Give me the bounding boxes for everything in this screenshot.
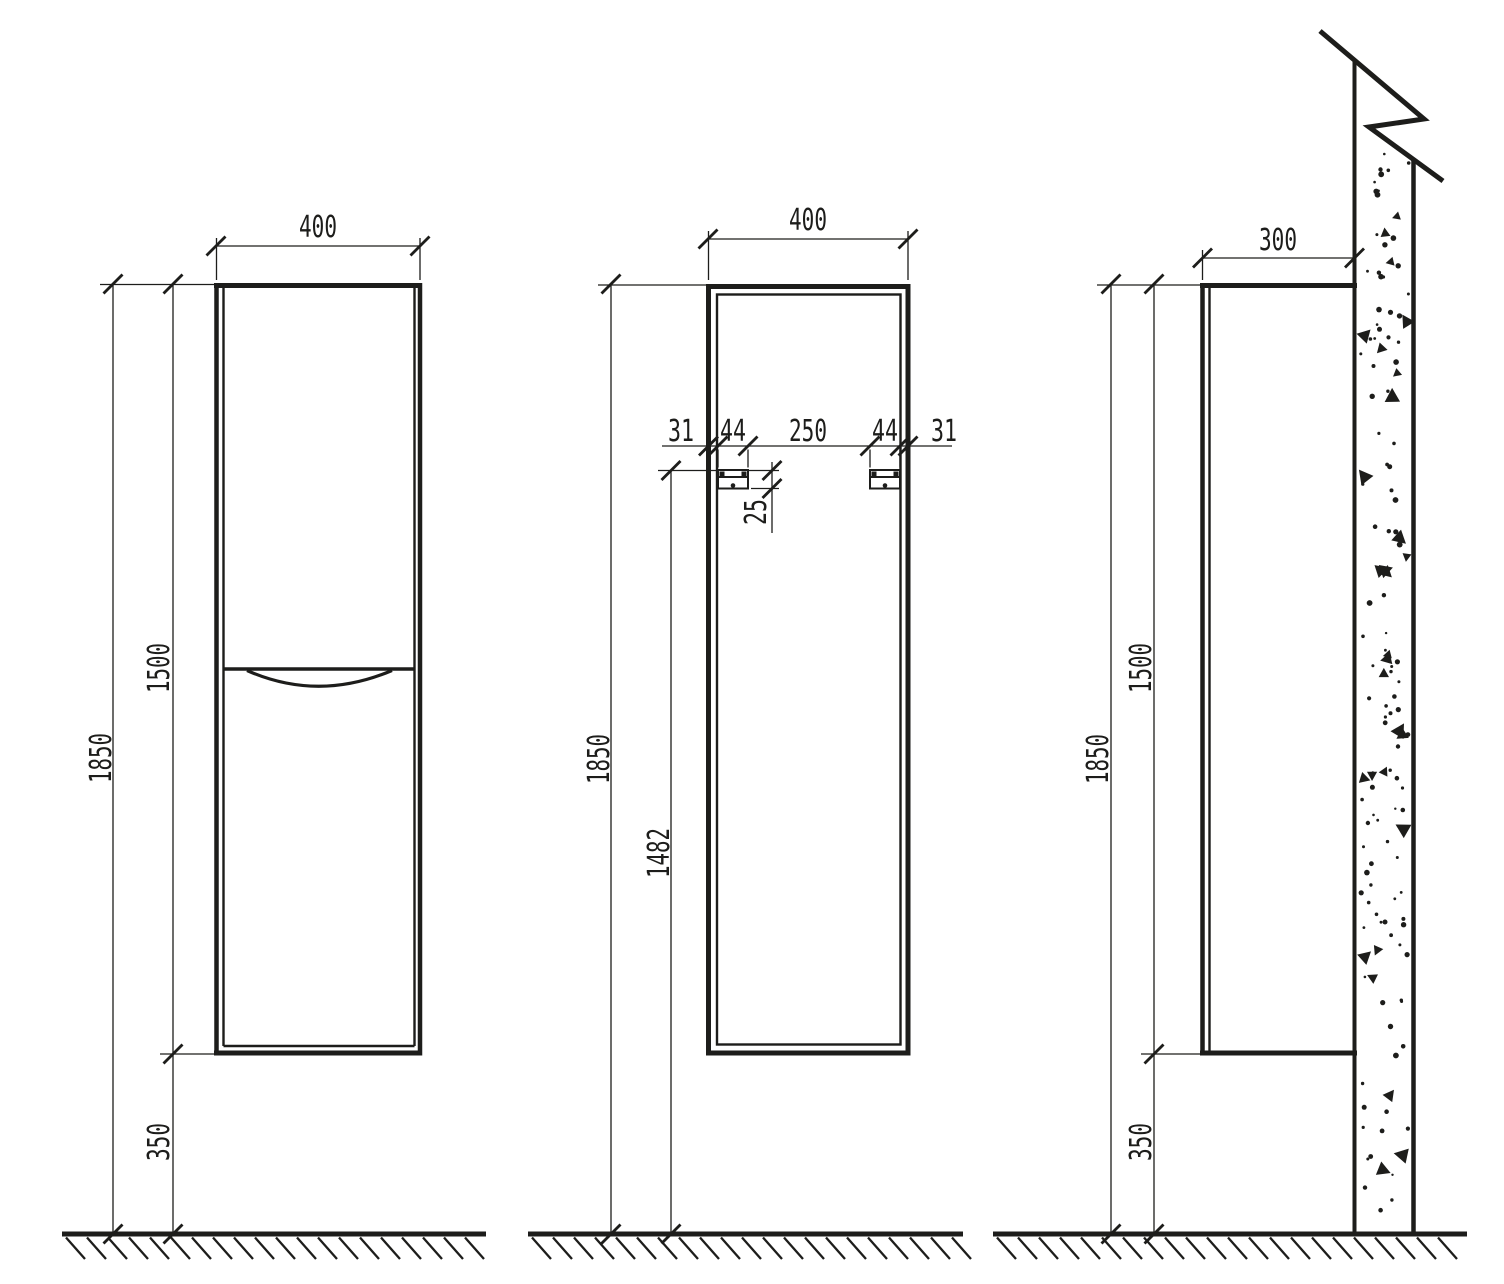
hatch-stroke [1018,1238,1037,1260]
floor-hatching [997,1238,1457,1260]
side-view: 300 1850 1500 350 [1081,31,1443,1234]
concrete-chip [1380,227,1391,237]
concrete-dot [1395,659,1400,664]
concrete-dot [1389,933,1393,937]
hatch-stroke [1039,1238,1058,1260]
concrete-dot [1383,920,1388,925]
concrete-dot [1387,169,1391,173]
hatch-stroke [402,1238,421,1260]
hatch-stroke [1165,1238,1184,1260]
hatch-stroke [889,1238,908,1260]
hatch-stroke [108,1238,127,1260]
concrete-dot [1400,1000,1403,1003]
concrete-dot [1383,720,1388,725]
concrete-dot [1407,161,1411,165]
concrete-dot [1390,665,1393,668]
hatch-stroke [465,1238,484,1260]
concrete-dot [1361,635,1365,639]
concrete-dot [1393,497,1399,503]
hatch-stroke [658,1238,677,1260]
hatch-stroke [931,1238,950,1260]
hatch-stroke [826,1238,845,1260]
concrete-dot [1360,798,1364,802]
concrete-dot [1377,190,1380,193]
concrete-dot [1367,696,1371,700]
hatch-stroke [423,1238,442,1260]
concrete-dot [1364,870,1370,876]
hatch-stroke [532,1238,551,1260]
hatch-stroke [381,1238,400,1260]
bracket-hole [883,483,888,488]
hatch-stroke [171,1238,190,1260]
concrete-dot [1393,897,1396,900]
concrete-chip [1379,668,1389,677]
hatch-stroke [66,1238,85,1260]
hatch-stroke [1081,1238,1100,1260]
concrete-dot [1407,293,1410,296]
concrete-dot [1364,976,1367,979]
concrete-chip [1391,212,1401,223]
hatch-stroke [360,1238,379,1260]
concrete-chip [1357,325,1376,344]
concrete-dot [1395,776,1400,781]
side-depth-label: 300 [1259,223,1297,258]
concrete-dot [1366,270,1369,273]
concrete-dot [1386,840,1389,843]
hanging-bracket-right [870,470,900,489]
concrete-dot [1369,337,1373,341]
front-floor-clearance-label: 350 [142,1123,177,1161]
ground-line-back [528,1234,971,1259]
concrete-dot [1377,271,1381,275]
concrete-dot [1389,769,1392,772]
concrete-dot [1405,952,1410,957]
hatch-stroke [910,1238,929,1260]
ground-line-side [993,1234,1467,1259]
concrete-dot [1390,488,1394,492]
concrete-dot [1369,883,1372,886]
hatch-stroke [318,1238,337,1260]
wall-break-line [1320,31,1443,181]
front-cabinet-height-label: 1500 [142,643,177,693]
back-offset-left-label: 31 [668,414,694,449]
concrete-dot [1396,856,1399,859]
hatch-stroke [444,1238,463,1260]
concrete-chip [1373,342,1388,357]
concrete-dot [1384,704,1388,708]
concrete-dot [1373,181,1376,184]
wall-concrete-speckles [1353,153,1415,1213]
concrete-dot [1382,593,1386,597]
hatch-stroke [1375,1238,1394,1260]
concrete-chip [1390,368,1402,380]
concrete-dot [1384,715,1387,718]
back-overall-height-label: 1850 [582,734,617,784]
concrete-dot [1362,1126,1365,1129]
concrete-dot [1384,1109,1389,1114]
hatch-stroke [87,1238,106,1260]
back-bracket-width-right-label: 44 [872,414,898,449]
concrete-dot [1376,307,1382,313]
hatch-stroke [784,1238,803,1260]
concrete-dot [1392,442,1396,446]
hatch-stroke [997,1238,1016,1260]
hatch-stroke [1270,1238,1289,1260]
hatch-stroke [700,1238,719,1260]
hatch-stroke [721,1238,740,1260]
technical-drawing-svg: 400 1850 1500 350 400 31 44 250 44 31 [0,0,1504,1284]
front-overall-height-label: 1850 [84,733,119,783]
concrete-dot [1388,310,1393,315]
hatch-stroke [1249,1238,1268,1260]
back-width-label: 400 [789,203,827,238]
concrete-dot [1376,819,1379,822]
concrete-dot [1391,1174,1393,1176]
concrete-dot [1385,632,1387,634]
hatch-stroke [1354,1238,1373,1260]
concrete-dot [1359,890,1364,895]
hatch-stroke [679,1238,698,1260]
hatch-stroke [868,1238,887,1260]
concrete-dot [1396,707,1401,712]
hatch-stroke [742,1238,761,1260]
hatch-stroke [255,1238,274,1260]
concrete-dot [1380,1000,1385,1005]
concrete-dot [1363,1185,1367,1189]
hatch-stroke [297,1238,316,1260]
concrete-dot [1370,394,1375,399]
hatch-stroke [1123,1238,1142,1260]
concrete-dot [1401,922,1406,927]
concrete-chip [1401,553,1411,562]
dimension-ticks [104,230,1365,1244]
concrete-dot [1397,313,1402,318]
concrete-dot [1373,524,1378,529]
concrete-chip [1376,1162,1393,1180]
concrete-chip [1384,388,1400,402]
back-mount-height-label: 1482 [642,828,677,878]
concrete-dot [1372,814,1375,817]
hatch-stroke [1438,1238,1457,1260]
concrete-dot [1387,529,1391,533]
concrete-dot [1361,1082,1364,1085]
hatch-stroke [1291,1238,1310,1260]
back-panel-inner-frame [717,295,901,1045]
concrete-dot [1371,664,1374,667]
hatch-stroke [805,1238,824,1260]
hatch-stroke [1186,1238,1205,1260]
concrete-dot [1400,891,1403,894]
hatch-stroke [553,1238,572,1260]
front-width-label: 400 [299,210,337,245]
back-bracket-width-left-label: 44 [720,414,746,449]
concrete-dot [1372,364,1376,368]
hatch-stroke [637,1238,656,1260]
bracket-hole [731,483,736,488]
concrete-dot [1382,242,1387,247]
concrete-dot [1376,323,1379,326]
hatch-stroke [213,1238,232,1260]
concrete-dot [1366,821,1370,825]
concrete-dot [1394,808,1396,810]
concrete-chip [1392,818,1412,838]
concrete-chip [1383,1086,1399,1102]
hatch-stroke [1396,1238,1415,1260]
concrete-dot [1383,153,1386,156]
concrete-dot [1370,785,1375,790]
concrete-dot [1367,901,1371,905]
hatch-stroke [847,1238,866,1260]
concrete-dot [1377,432,1380,435]
hatch-stroke [276,1238,295,1260]
bracket-screw-left [720,472,725,477]
concrete-dot [1386,390,1389,393]
concrete-dot [1387,464,1392,469]
concrete-dot [1373,337,1376,340]
concrete-dot [1363,926,1366,929]
drawing-page: 400 1850 1500 350 400 31 44 250 44 31 [0,0,1504,1284]
concrete-dot [1380,1129,1385,1134]
concrete-dot [1362,1105,1367,1110]
concrete-dot [1406,1127,1410,1131]
hatch-stroke [234,1238,253,1260]
concrete-dot [1380,921,1383,924]
front-handle-recess-curve [247,671,392,687]
concrete-chip [1370,945,1383,958]
side-overall-height-label: 1850 [1081,734,1116,784]
floor-hatching [66,1238,484,1260]
back-plate-height-label: 25 [739,499,774,525]
concrete-dot [1392,694,1397,699]
concrete-dot [1378,167,1382,171]
back-offset-right-label: 31 [931,414,957,449]
concrete-dot [1375,233,1378,236]
hanging-bracket-left [718,470,748,489]
hatch-stroke [616,1238,635,1260]
bracket-screw-left [872,472,877,477]
concrete-dot [1368,1154,1373,1159]
back-view: 400 31 44 250 44 31 25 1850 1482 [582,203,957,1234]
hatch-stroke [339,1238,358,1260]
hatch-stroke [1333,1238,1352,1260]
hatch-stroke [574,1238,593,1260]
bracket-screw-right [742,472,747,477]
concrete-dot [1390,1198,1393,1201]
concrete-dot [1397,341,1400,344]
concrete-dot [1367,600,1373,606]
concrete-dot [1384,649,1387,652]
concrete-dot [1386,335,1390,339]
concrete-dot [1401,808,1406,813]
concrete-dot [1389,670,1392,673]
concrete-dot [1375,913,1379,917]
concrete-dot [1378,1208,1383,1213]
concrete-dot [1401,786,1404,789]
concrete-dot [1369,861,1374,866]
hatch-stroke [192,1238,211,1260]
concrete-dot [1377,327,1382,332]
side-floor-clearance-label: 350 [1124,1123,1159,1161]
concrete-dot [1398,943,1401,946]
concrete-dot [1359,352,1362,355]
concrete-dot [1393,1053,1399,1059]
hatch-stroke [1228,1238,1247,1260]
concrete-dot [1388,1024,1393,1029]
concrete-chip [1392,1146,1409,1164]
concrete-dot [1401,917,1405,921]
concrete-chip [1385,257,1395,268]
hatch-stroke [1207,1238,1226,1260]
hatch-stroke [1312,1238,1331,1260]
hatch-stroke [1417,1238,1436,1260]
hatch-stroke [129,1238,148,1260]
side-cabinet-height-label: 1500 [1124,643,1159,693]
concrete-dot [1391,235,1397,241]
front-view: 400 1850 1500 350 [84,210,422,1234]
hatch-stroke [1060,1238,1079,1260]
concrete-chip [1357,946,1375,965]
concrete-dot [1397,680,1400,683]
concrete-dot [1389,711,1393,715]
bracket-screw-right [894,472,899,477]
concrete-dot [1362,845,1365,848]
floor-hatching [532,1238,971,1260]
concrete-dot [1396,744,1400,748]
concrete-dot [1401,1044,1406,1049]
concrete-dot [1396,263,1401,268]
ground-line-front [62,1234,486,1259]
concrete-dot [1378,171,1384,177]
concrete-chip [1365,970,1378,984]
back-bracket-spacing-label: 250 [789,414,827,449]
concrete-dot [1393,359,1399,365]
hatch-stroke [952,1238,971,1260]
hatch-stroke [763,1238,782,1260]
